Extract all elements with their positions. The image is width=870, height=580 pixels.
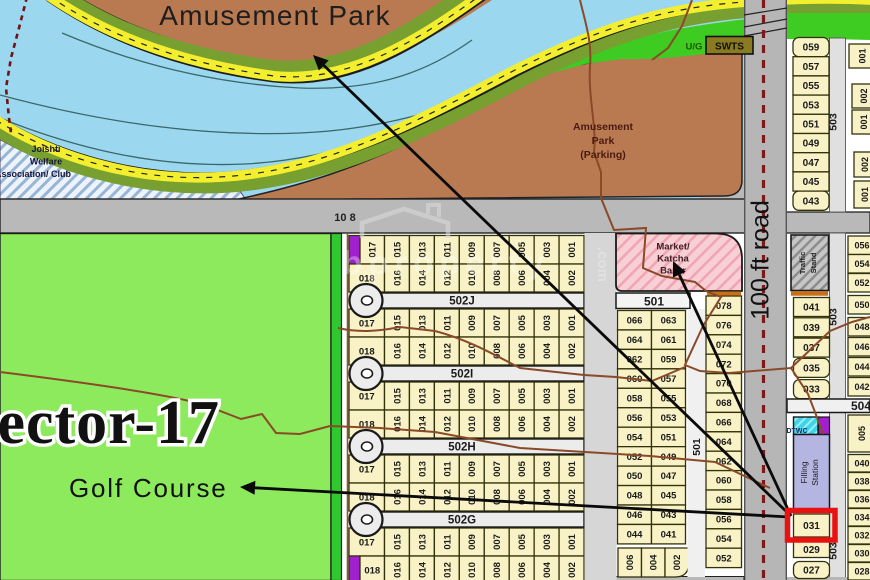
svg-text:059: 059 <box>661 355 677 366</box>
svg-text:502I: 502I <box>451 369 473 381</box>
svg-text:050: 050 <box>854 300 869 310</box>
svg-text:044: 044 <box>854 362 869 372</box>
svg-text:066: 066 <box>627 316 643 327</box>
svg-text:003: 003 <box>542 388 553 404</box>
svg-text:018: 018 <box>359 419 375 430</box>
svg-text:052: 052 <box>716 553 732 564</box>
svg-text:005: 005 <box>517 460 528 477</box>
svg-text:041: 041 <box>661 530 678 541</box>
svg-text:013: 013 <box>417 388 428 404</box>
svg-text:015: 015 <box>392 460 403 477</box>
svg-text:041: 041 <box>803 303 820 314</box>
svg-text:027: 027 <box>803 566 820 577</box>
svg-text:SWTS: SWTS <box>715 42 744 53</box>
svg-text:007: 007 <box>492 388 503 404</box>
svg-text:055: 055 <box>803 81 820 92</box>
svg-text:010: 010 <box>467 416 478 432</box>
svg-text:016: 016 <box>392 562 403 578</box>
svg-text:018: 018 <box>359 346 375 357</box>
svg-text:057: 057 <box>803 62 820 73</box>
svg-text:004: 004 <box>542 415 553 432</box>
svg-text:053: 053 <box>661 413 677 424</box>
svg-text:501: 501 <box>691 438 703 456</box>
svg-text:503: 503 <box>828 308 840 326</box>
svg-text:017: 017 <box>359 391 375 402</box>
svg-text:012: 012 <box>442 343 453 359</box>
svg-text:060: 060 <box>716 476 732 487</box>
svg-text:Joishti: Joishti <box>31 144 60 154</box>
svg-text:002: 002 <box>567 562 578 578</box>
svg-text:063: 063 <box>661 316 677 327</box>
svg-text:017: 017 <box>359 537 375 548</box>
svg-text:014: 014 <box>417 342 428 359</box>
svg-text:047: 047 <box>803 158 820 169</box>
svg-text:028: 028 <box>854 566 869 576</box>
svg-text:002: 002 <box>567 416 578 432</box>
svg-text:001: 001 <box>567 241 578 258</box>
svg-text:002: 002 <box>859 88 869 103</box>
svg-text:045: 045 <box>661 491 678 502</box>
svg-text:Amusement Park: Amusement Park <box>159 0 391 31</box>
svg-text:007: 007 <box>492 534 503 550</box>
svg-text:045: 045 <box>803 177 820 188</box>
svg-text:015: 015 <box>392 387 403 404</box>
svg-text:059: 059 <box>803 43 820 54</box>
svg-text:074: 074 <box>716 340 733 351</box>
svg-text:001: 001 <box>858 48 868 63</box>
svg-text:Station: Station <box>810 459 820 486</box>
svg-text:017: 017 <box>359 318 375 329</box>
svg-text:052: 052 <box>627 452 643 463</box>
svg-text:004: 004 <box>649 554 660 571</box>
svg-text:018: 018 <box>364 565 380 576</box>
svg-text:003: 003 <box>542 534 553 550</box>
svg-text:056: 056 <box>854 240 869 250</box>
svg-text:050: 050 <box>627 471 643 482</box>
svg-text:001: 001 <box>567 387 578 404</box>
svg-text:031: 031 <box>803 521 820 532</box>
svg-text:001: 001 <box>567 314 578 331</box>
svg-text:006: 006 <box>517 416 528 432</box>
svg-text:502H: 502H <box>448 442 476 454</box>
svg-text:502G: 502G <box>448 515 476 527</box>
svg-text:10 8: 10 8 <box>334 212 355 224</box>
svg-text:Market/: Market/ <box>656 242 690 253</box>
svg-text:501: 501 <box>644 295 664 309</box>
svg-text:061: 061 <box>661 335 678 346</box>
svg-text:100 ft road: 100 ft road <box>747 200 775 320</box>
svg-text:002: 002 <box>860 157 870 172</box>
svg-text:Association/ Club: Association/ Club <box>0 169 72 179</box>
svg-text:066: 066 <box>716 418 732 429</box>
svg-text:076: 076 <box>716 321 732 332</box>
svg-text:038: 038 <box>854 476 869 486</box>
svg-text:Welfare: Welfare <box>30 157 62 167</box>
svg-text:004: 004 <box>542 342 553 359</box>
svg-text:046: 046 <box>627 510 643 521</box>
svg-text:004: 004 <box>542 561 553 578</box>
svg-text:051: 051 <box>803 120 820 131</box>
svg-text:044: 044 <box>627 530 644 541</box>
svg-text:002: 002 <box>567 343 578 359</box>
svg-text:005: 005 <box>857 426 867 441</box>
svg-text:053: 053 <box>803 100 820 111</box>
svg-text:064: 064 <box>627 335 644 346</box>
svg-text:009: 009 <box>467 388 478 404</box>
svg-text:008: 008 <box>492 562 503 578</box>
svg-text:034: 034 <box>854 512 869 522</box>
svg-text:014: 014 <box>417 415 428 432</box>
svg-text:006: 006 <box>625 555 636 571</box>
svg-text:502J: 502J <box>449 296 475 308</box>
svg-text:054: 054 <box>854 259 869 269</box>
svg-text:042: 042 <box>854 382 869 392</box>
svg-text:035: 035 <box>803 364 820 375</box>
svg-text:054: 054 <box>716 534 733 545</box>
svg-text:011: 011 <box>442 534 453 550</box>
svg-text:Park: Park <box>592 135 615 147</box>
svg-text:049: 049 <box>803 139 820 150</box>
svg-text:005: 005 <box>517 533 528 550</box>
svg-text:032: 032 <box>854 530 869 540</box>
svg-text:bproperty: bproperty <box>342 244 550 281</box>
svg-text:048: 048 <box>854 322 869 332</box>
svg-text:029: 029 <box>803 545 820 556</box>
svg-text:006: 006 <box>517 343 528 359</box>
svg-text:003: 003 <box>542 461 553 477</box>
svg-text:001: 001 <box>860 187 870 202</box>
svg-text:001: 001 <box>567 460 578 477</box>
svg-text:009: 009 <box>467 315 478 331</box>
svg-text:040: 040 <box>854 458 869 468</box>
svg-text:U/G: U/G <box>686 42 703 53</box>
svg-text:003: 003 <box>542 315 553 331</box>
svg-text:Traffic: Traffic <box>798 252 807 275</box>
svg-text:.com: .com <box>594 247 611 282</box>
svg-text:068: 068 <box>716 398 732 409</box>
svg-text:503: 503 <box>828 113 840 131</box>
svg-text:504: 504 <box>851 399 870 413</box>
svg-text:054: 054 <box>627 432 644 443</box>
svg-text:058: 058 <box>627 393 643 404</box>
svg-text:009: 009 <box>467 461 478 477</box>
svg-text:002: 002 <box>567 489 578 505</box>
svg-text:017: 017 <box>359 464 375 475</box>
svg-text:005: 005 <box>517 314 528 331</box>
svg-text:011: 011 <box>442 315 453 331</box>
svg-text:Filling: Filling <box>799 461 809 483</box>
svg-text:007: 007 <box>492 315 503 331</box>
svg-text:043: 043 <box>803 196 820 207</box>
svg-text:007: 007 <box>492 461 503 477</box>
svg-text:039: 039 <box>803 323 820 334</box>
svg-text:009: 009 <box>467 534 478 550</box>
svg-text:010: 010 <box>467 489 478 505</box>
svg-text:005: 005 <box>517 387 528 404</box>
svg-text:012: 012 <box>442 562 453 578</box>
svg-text:011: 011 <box>442 461 453 477</box>
svg-text:002: 002 <box>672 555 683 571</box>
svg-text:011: 011 <box>442 388 453 404</box>
svg-text:012: 012 <box>442 416 453 432</box>
svg-text:503: 503 <box>828 542 840 560</box>
svg-text:Amusement: Amusement <box>573 121 634 133</box>
svg-text:014: 014 <box>417 561 428 578</box>
svg-text:Stand: Stand <box>809 252 818 273</box>
svg-text:(Parking): (Parking) <box>580 149 626 161</box>
svg-text:008: 008 <box>492 416 503 432</box>
svg-text:048: 048 <box>627 491 643 502</box>
svg-text:001: 001 <box>567 533 578 550</box>
svg-text:013: 013 <box>417 534 428 550</box>
svg-text:013: 013 <box>417 461 428 477</box>
svg-text:006: 006 <box>517 562 528 578</box>
svg-text:Golf Course: Golf Course <box>69 473 228 503</box>
svg-text:016: 016 <box>392 343 403 359</box>
svg-text:046: 046 <box>854 342 869 352</box>
svg-text:047: 047 <box>661 471 677 482</box>
svg-text:010: 010 <box>467 562 478 578</box>
svg-text:DTWC: DTWC <box>787 428 808 435</box>
svg-text:036: 036 <box>854 494 869 504</box>
svg-text:051: 051 <box>661 432 678 443</box>
svg-text:015: 015 <box>392 533 403 550</box>
svg-text:058: 058 <box>716 495 732 506</box>
svg-text:052: 052 <box>854 278 869 288</box>
svg-text:030: 030 <box>854 548 869 558</box>
svg-text:056: 056 <box>627 413 643 424</box>
svg-text:Sector-17: Sector-17 <box>0 389 220 457</box>
svg-text:002: 002 <box>567 270 578 286</box>
svg-text:056: 056 <box>716 515 732 526</box>
svg-text:001: 001 <box>859 114 869 129</box>
